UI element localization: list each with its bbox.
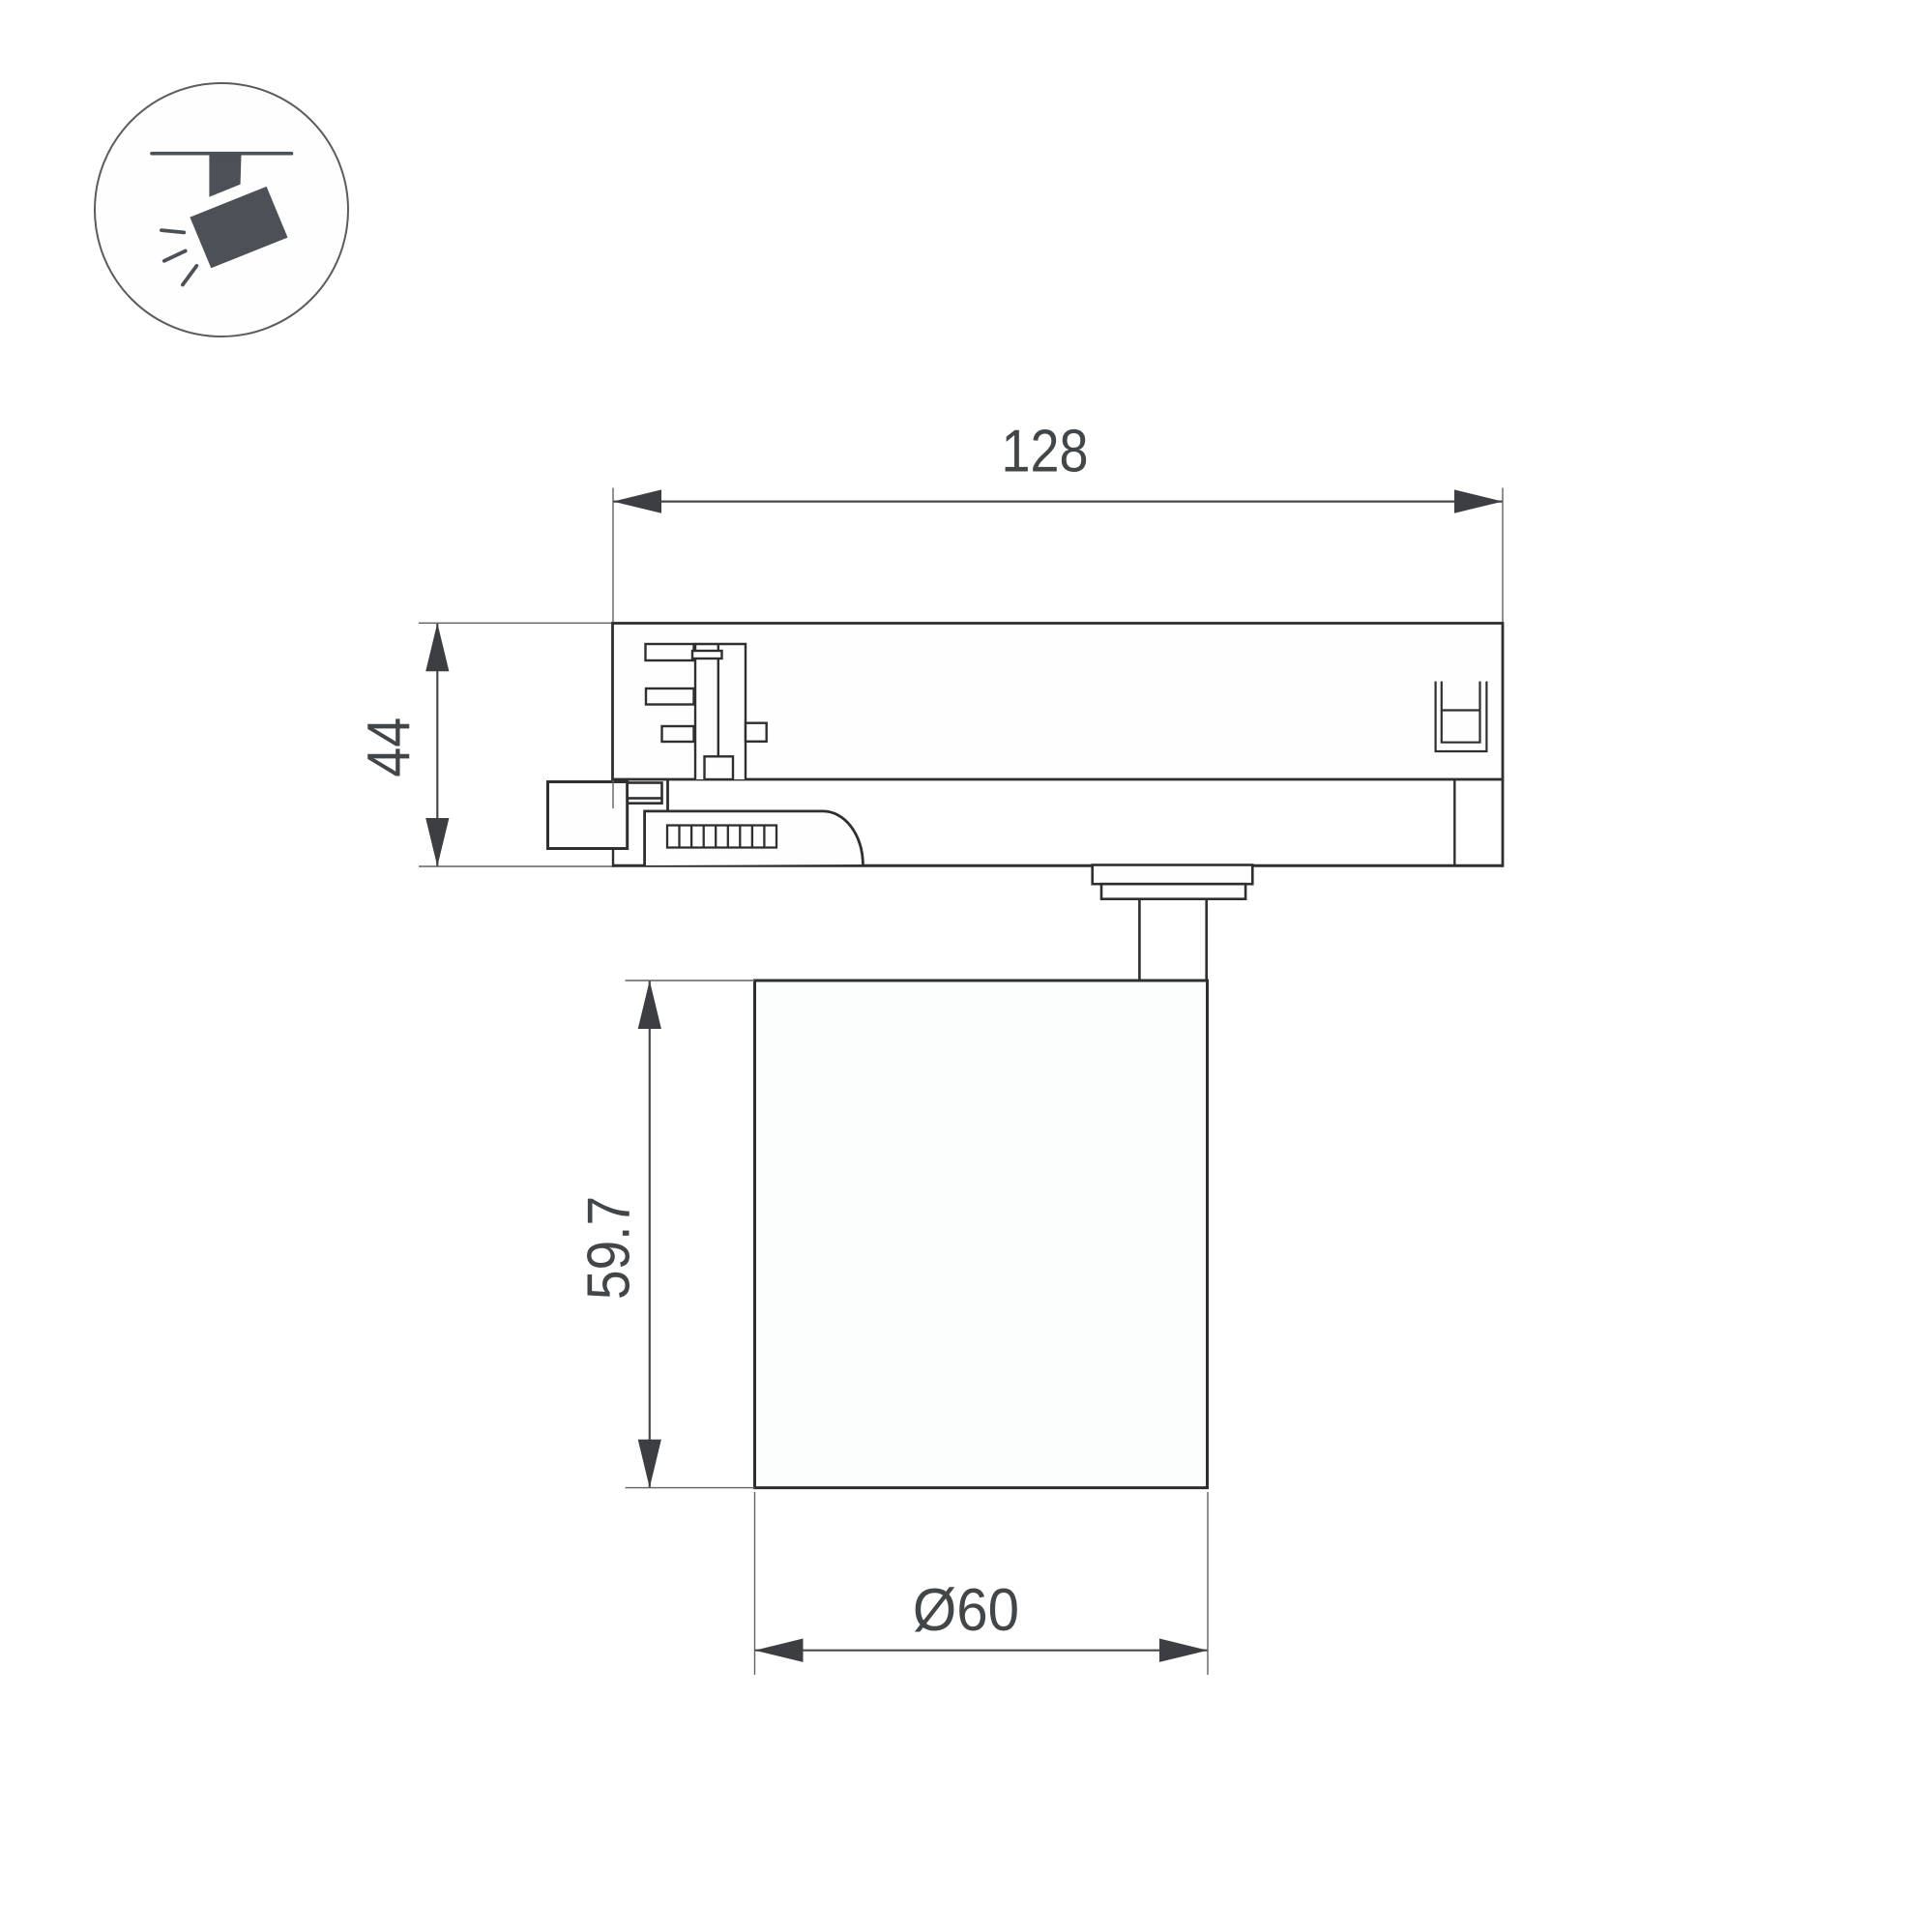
svg-text:128: 128 xyxy=(1002,418,1089,484)
svg-text:44: 44 xyxy=(356,717,422,777)
svg-text:59.7: 59.7 xyxy=(576,1196,643,1300)
svg-text:Ø60: Ø60 xyxy=(913,1576,1019,1643)
